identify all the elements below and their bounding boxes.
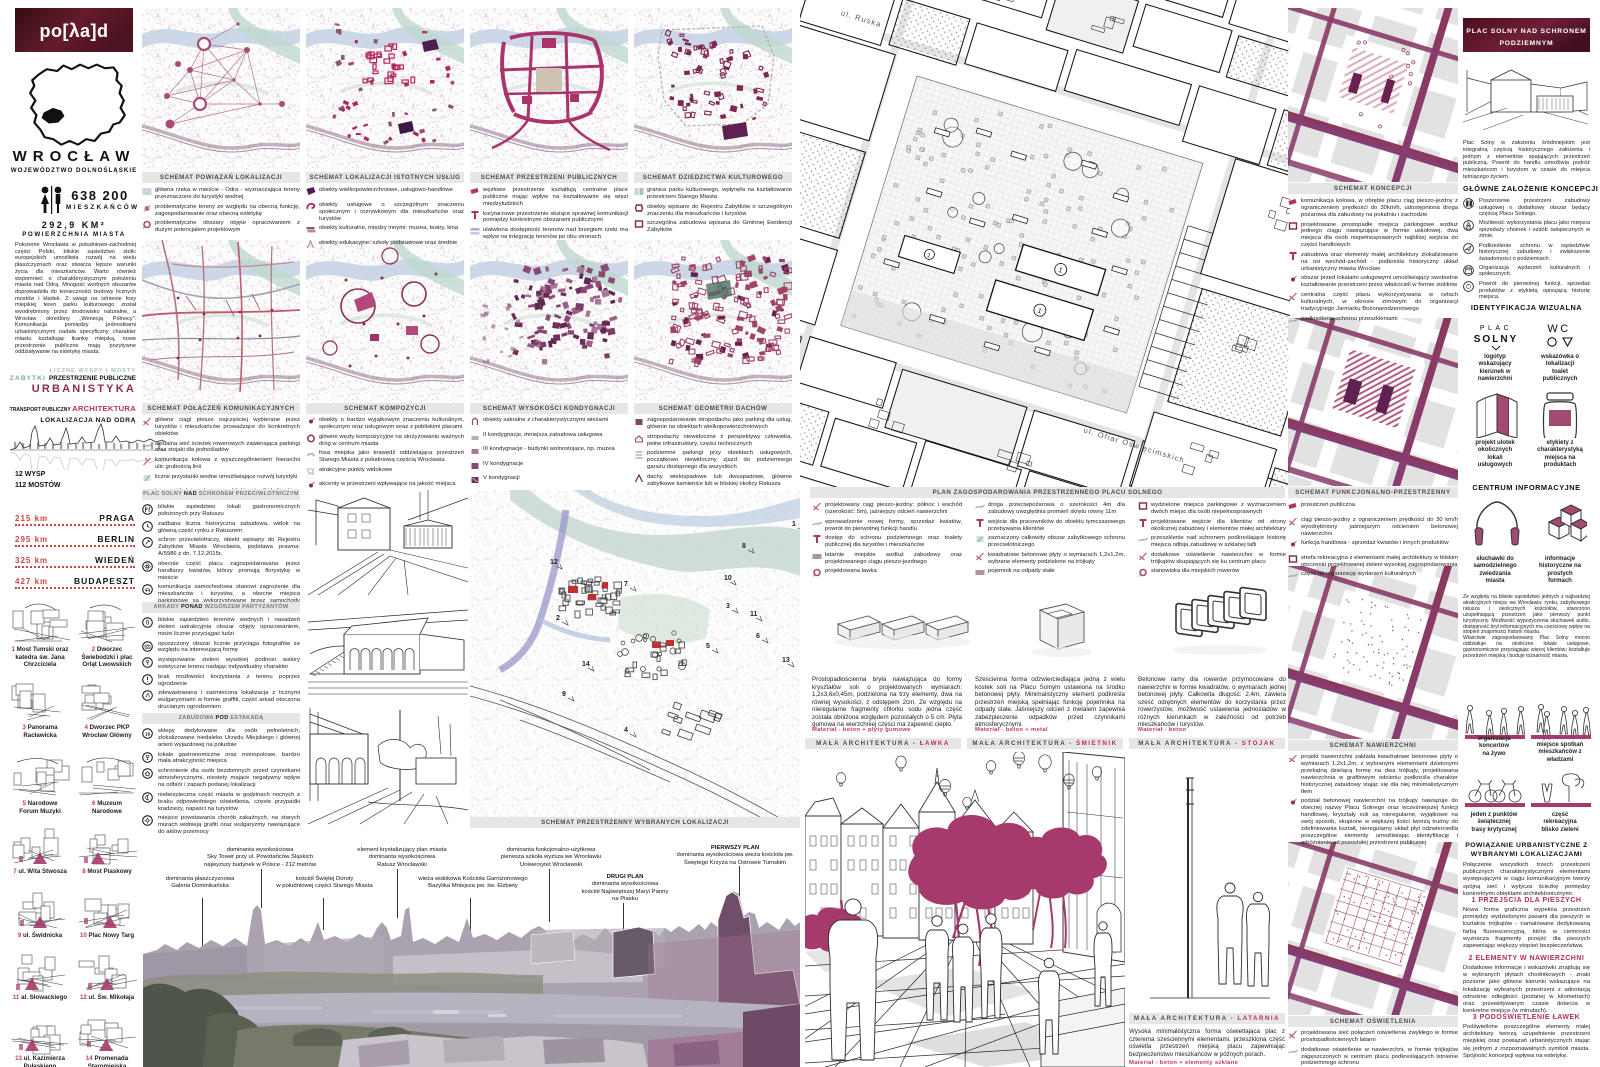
svg-text:7: 7	[624, 581, 628, 588]
svg-text:4: 4	[624, 727, 628, 734]
svg-text:18: 18	[145, 731, 151, 736]
svg-text:3: 3	[726, 603, 730, 610]
svg-text:8: 8	[742, 543, 746, 550]
svg-text:11: 11	[750, 611, 758, 618]
svg-text:2: 2	[556, 615, 560, 622]
svg-text:12: 12	[550, 559, 558, 566]
svg-text:WC: WC	[1547, 323, 1570, 335]
svg-text:5: 5	[706, 643, 710, 650]
svg-text:9: 9	[562, 691, 566, 698]
svg-text:SOLNY: SOLNY	[1474, 334, 1518, 345]
svg-text:6: 6	[756, 633, 760, 640]
svg-text:PLAC: PLAC	[1480, 325, 1512, 332]
svg-text:PLAC SOLNY NAD SCHRONEM: PLAC SOLNY NAD SCHRONEM	[1466, 28, 1586, 35]
svg-text:10: 10	[724, 575, 732, 582]
svg-text:14: 14	[582, 661, 590, 668]
svg-text:PODZIEMNYM: PODZIEMNYM	[1499, 40, 1553, 47]
svg-text:13: 13	[782, 657, 790, 664]
svg-text:po[λa]d: po[λa]d	[39, 21, 108, 42]
svg-text:1: 1	[792, 521, 796, 528]
